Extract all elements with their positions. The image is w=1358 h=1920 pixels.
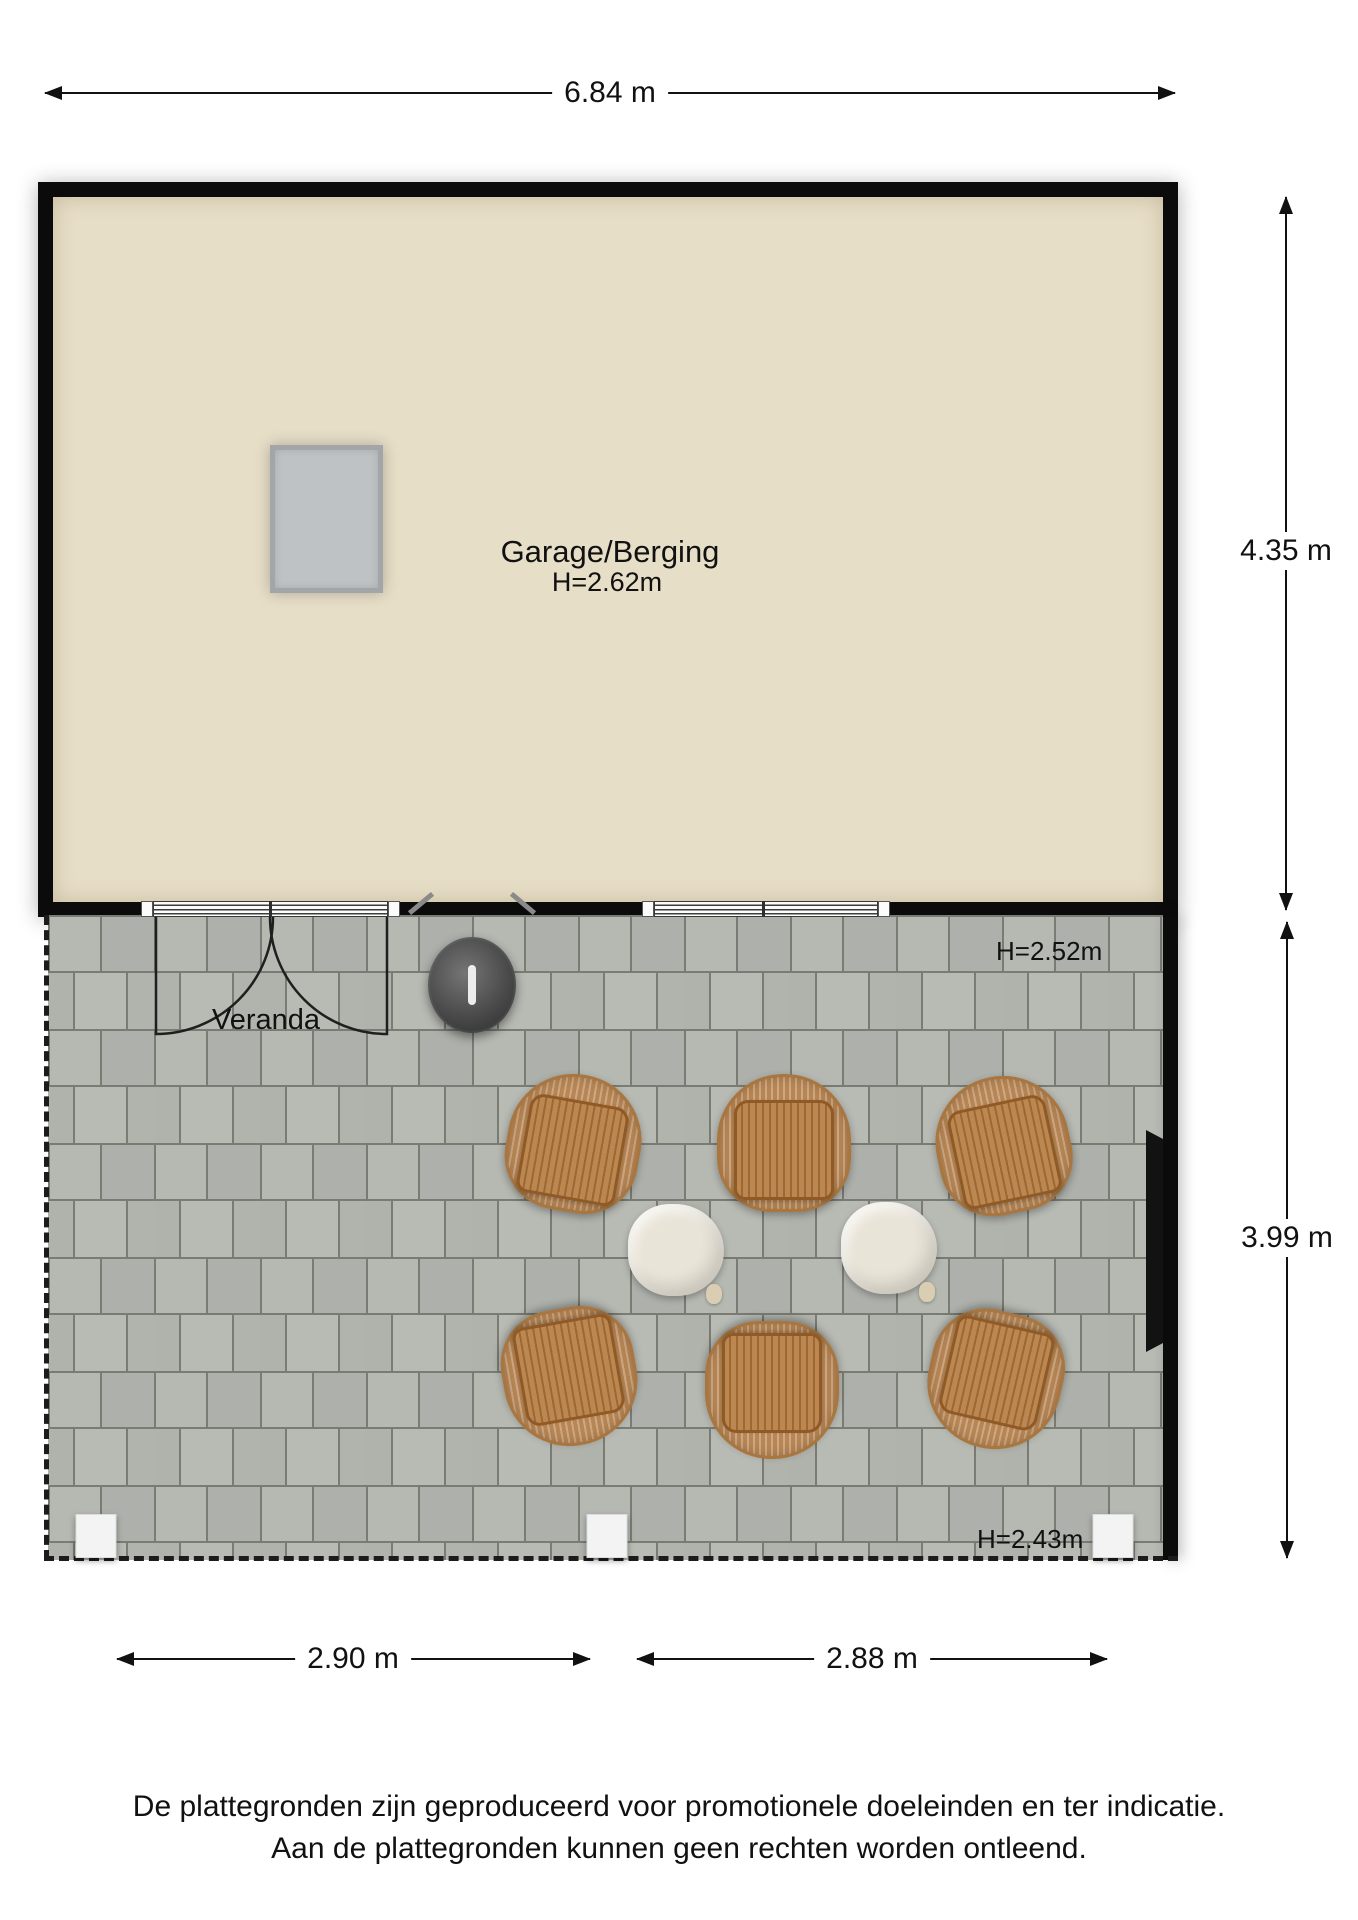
wicker-chair xyxy=(705,1321,839,1459)
garage-room-label: Garage/Berging xyxy=(501,534,720,570)
wall-post xyxy=(878,901,890,917)
wall-post xyxy=(141,901,153,917)
dimension-label-bottom-right: 2.88 m xyxy=(814,1640,930,1678)
floor-plan: 6.84 m Garage/Berging H=2.62m xyxy=(0,0,1358,1920)
veranda-height-bottom-label: H=2.43m xyxy=(977,1524,1083,1555)
wall-post xyxy=(388,901,400,917)
support-post xyxy=(587,1514,628,1558)
furniture-layer xyxy=(0,0,1358,1920)
support-post xyxy=(1093,1514,1134,1558)
chair-seat xyxy=(515,1092,631,1208)
table-leg xyxy=(919,1282,935,1302)
bbq-handle xyxy=(408,892,434,915)
table-leg xyxy=(706,1284,722,1304)
wicker-chair xyxy=(923,1064,1083,1227)
door-divider xyxy=(269,901,272,917)
bbq-grill xyxy=(428,937,516,1033)
bbq-handle-bar xyxy=(468,965,476,1005)
veranda-height-top-label: H=2.52m xyxy=(996,936,1102,967)
wicker-chair xyxy=(492,1297,648,1456)
bbq-handle xyxy=(510,892,536,915)
chair-seat xyxy=(511,1312,627,1428)
dimension-label-bottom-left: 2.90 m xyxy=(295,1640,411,1678)
footer-line-2: Aan de plattegronden kunnen geen rechten… xyxy=(0,1828,1358,1870)
garage-height-label: H=2.62m xyxy=(552,567,662,598)
side-table xyxy=(628,1204,724,1296)
dimension-label-garage-depth: 4.35 m xyxy=(1228,532,1344,570)
side-table xyxy=(841,1202,937,1294)
dimension-label-veranda-depth: 3.99 m xyxy=(1229,1219,1345,1257)
wicker-chair xyxy=(717,1074,851,1212)
footer-disclaimer: De plattegronden zijn geproduceerd voor … xyxy=(0,1786,1358,1870)
chair-seat xyxy=(722,1333,822,1433)
dimension-label-top: 6.84 m xyxy=(552,74,668,112)
wicker-chair xyxy=(914,1298,1076,1463)
support-post xyxy=(76,1514,117,1558)
chair-seat xyxy=(945,1093,1064,1212)
wall-post xyxy=(642,901,654,917)
veranda-room-label: Veranda xyxy=(212,1004,320,1037)
wicker-chair xyxy=(496,1063,652,1222)
footer-line-1: De plattegronden zijn geproduceerd voor … xyxy=(0,1786,1358,1828)
window-divider xyxy=(762,901,765,917)
chair-seat xyxy=(734,1100,834,1200)
